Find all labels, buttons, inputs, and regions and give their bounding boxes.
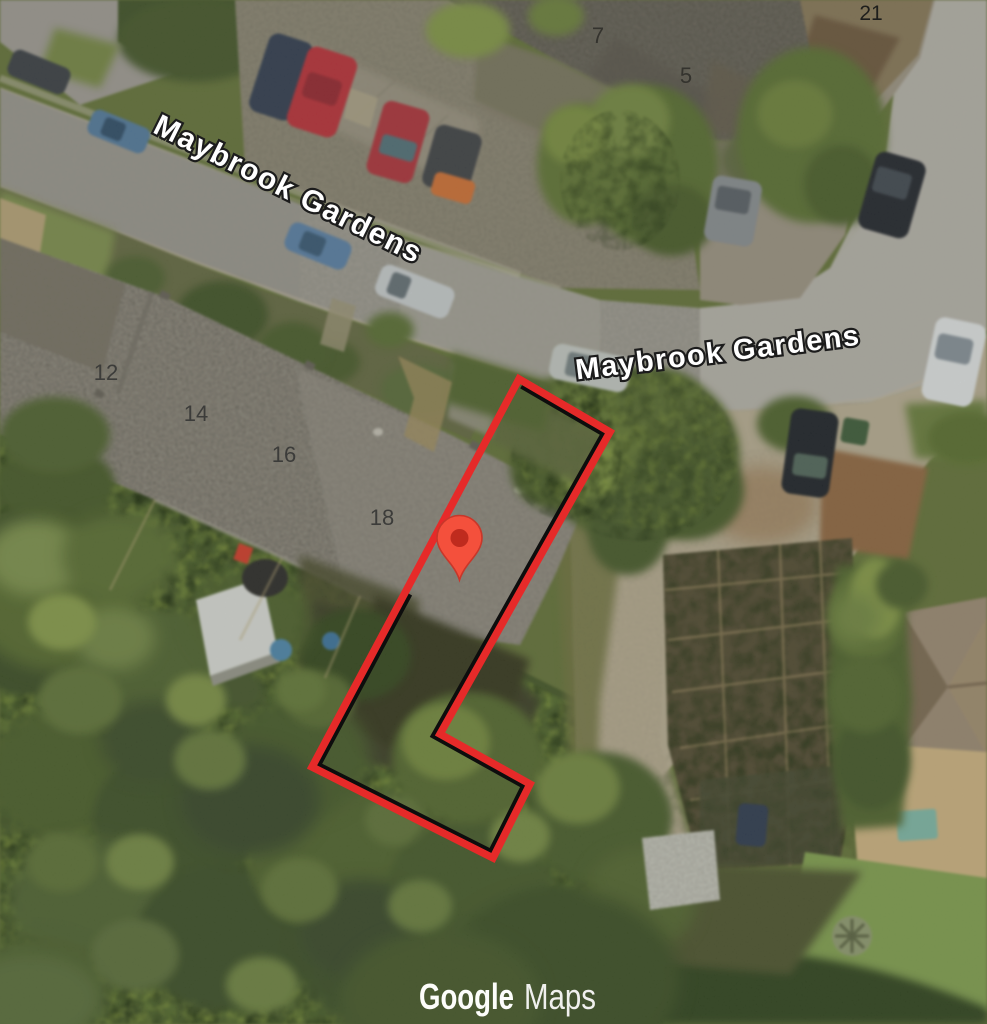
svg-text:12: 12 [94, 360, 118, 385]
svg-text:7: 7 [592, 23, 604, 48]
svg-text:18: 18 [370, 505, 394, 530]
svg-text:GoogleMaps: GoogleMaps [419, 976, 596, 1017]
svg-text:5: 5 [680, 63, 692, 88]
svg-text:16: 16 [272, 442, 296, 467]
svg-text:14: 14 [184, 401, 208, 426]
svg-text:21: 21 [859, 2, 882, 25]
